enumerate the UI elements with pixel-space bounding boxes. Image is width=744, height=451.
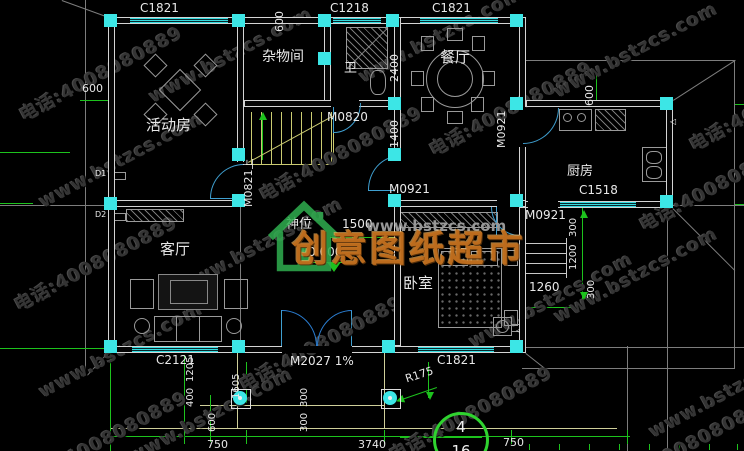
window bbox=[418, 347, 494, 352]
dim-300-right-a: 300 bbox=[569, 218, 579, 237]
chair bbox=[447, 111, 463, 124]
column bbox=[318, 14, 331, 27]
window bbox=[560, 202, 636, 207]
stair-tread bbox=[301, 112, 302, 164]
column bbox=[232, 340, 245, 353]
armchair bbox=[224, 279, 248, 309]
dim-400: 400 bbox=[186, 388, 196, 407]
dim-750-left: 750 bbox=[207, 439, 228, 450]
column bbox=[104, 14, 117, 27]
exterior-step-line bbox=[522, 243, 567, 244]
dim-600-porch: 600 bbox=[208, 413, 218, 432]
tv bbox=[170, 280, 208, 304]
column bbox=[386, 14, 399, 27]
dimension-line bbox=[627, 430, 628, 444]
burner bbox=[563, 113, 572, 122]
column bbox=[388, 97, 401, 110]
wall bbox=[526, 100, 673, 107]
dim-600-left: 600 bbox=[82, 83, 103, 94]
chair bbox=[471, 97, 484, 112]
dimension-line bbox=[589, 444, 590, 450]
column bbox=[660, 195, 673, 208]
column bbox=[510, 194, 523, 207]
dim-600-top: 600 bbox=[274, 11, 285, 32]
chair bbox=[411, 71, 424, 86]
floorplan-canvas: www.bstzcs.com 创意图纸超市 4 16 电话:4008080889… bbox=[0, 0, 744, 451]
burner bbox=[577, 113, 586, 122]
dimension-arrow bbox=[426, 392, 434, 400]
column bbox=[232, 14, 245, 27]
room-bedroom: 卧室 bbox=[403, 276, 433, 291]
column bbox=[510, 340, 523, 353]
column bbox=[104, 197, 117, 210]
counter-appliance bbox=[595, 109, 626, 131]
armchair bbox=[130, 279, 154, 309]
construction-line bbox=[62, 0, 106, 17]
win-c1518: C1518 bbox=[579, 184, 618, 196]
watermark-text: 电话:4008080889 bbox=[635, 129, 744, 237]
wall bbox=[108, 17, 115, 353]
column bbox=[510, 97, 523, 110]
c1821-top-left: C1821 bbox=[140, 2, 179, 14]
chair bbox=[472, 36, 485, 51]
dim-300-right-b: 300 bbox=[587, 280, 597, 299]
side-table bbox=[226, 318, 242, 334]
window bbox=[333, 18, 381, 23]
watermark-text: 电话:4008080889 bbox=[685, 49, 744, 157]
room-storage: 杂物间 bbox=[262, 50, 304, 64]
toilet bbox=[370, 70, 386, 95]
door-m0820: M0820 bbox=[327, 111, 368, 123]
room-living: 客厅 bbox=[160, 242, 190, 257]
door-opening bbox=[528, 201, 558, 208]
window bbox=[132, 347, 218, 352]
c1821-bottom: C1821 bbox=[437, 354, 476, 366]
stair-tread bbox=[251, 112, 252, 164]
porch-column-dot bbox=[388, 396, 392, 400]
mark-d2: D2 bbox=[95, 211, 106, 219]
door-m0821: M0821上 bbox=[243, 159, 254, 208]
side-table bbox=[134, 318, 150, 334]
watermark-text: 电话:4008080889 bbox=[10, 209, 182, 317]
exterior-step-line bbox=[566, 238, 567, 278]
sheet-number: 4 bbox=[436, 418, 486, 436]
sofa-divider bbox=[176, 317, 177, 341]
sheet-number-bubble: 4 16 bbox=[433, 412, 489, 451]
room-bath: 卫 bbox=[344, 62, 357, 75]
construction-line bbox=[673, 60, 736, 101]
stair-tread bbox=[271, 112, 272, 164]
dimension-line bbox=[737, 444, 738, 450]
dim-1400: 1400 bbox=[389, 120, 400, 148]
dim-750-right: 750 bbox=[503, 437, 524, 448]
sheet-total: 16 bbox=[436, 442, 486, 451]
dim-600-kitchen: 600 bbox=[584, 85, 595, 106]
dimension-line bbox=[0, 152, 70, 153]
basin bbox=[646, 166, 662, 179]
column bbox=[660, 97, 673, 110]
dimension-line bbox=[735, 204, 744, 205]
room-activity: 活动房 bbox=[146, 118, 191, 133]
sofa bbox=[154, 316, 222, 342]
dim-1605: 1605 bbox=[232, 374, 242, 399]
chair bbox=[447, 28, 463, 41]
mark-d1: D1 bbox=[95, 170, 106, 178]
dim-300-porch-b: 300 bbox=[300, 413, 310, 432]
chair bbox=[421, 36, 434, 51]
watermark-text: www.bstzcs.com bbox=[551, 0, 722, 103]
door-swing-arc bbox=[210, 164, 244, 198]
column bbox=[510, 14, 523, 27]
room-kitchen: 厨房 bbox=[567, 165, 593, 178]
drain-marker: ◃ bbox=[516, 327, 520, 335]
column bbox=[388, 148, 401, 161]
dining-table-inner bbox=[437, 61, 473, 97]
dimension-line bbox=[0, 348, 106, 349]
column bbox=[318, 52, 331, 65]
dimension-line bbox=[529, 444, 530, 450]
stair-tread bbox=[281, 112, 282, 164]
c1821-top-right: C1821 bbox=[432, 2, 471, 14]
door-m0921-bedroom: M0921 bbox=[525, 209, 566, 221]
wall bbox=[244, 100, 401, 107]
dim-2400: 2400 bbox=[389, 54, 400, 82]
door-m0921-hall: M0921 bbox=[389, 183, 430, 195]
sofa-divider bbox=[199, 317, 200, 341]
room-dining: 餐厅 bbox=[440, 50, 470, 65]
dimension-arrow bbox=[259, 112, 267, 120]
basin bbox=[646, 151, 662, 164]
column bbox=[104, 340, 117, 353]
construction-line bbox=[526, 347, 744, 348]
construction-line bbox=[522, 368, 735, 369]
door-swing-arc bbox=[282, 310, 317, 346]
sideboard bbox=[126, 209, 184, 222]
dimension-line bbox=[246, 430, 247, 444]
wall bbox=[108, 200, 244, 207]
dim-3740: 3740 bbox=[358, 439, 386, 450]
window bbox=[420, 18, 498, 23]
door-swing-marker: ◁ bbox=[670, 118, 676, 126]
door-m0921-vert: M0921 bbox=[496, 111, 507, 149]
watermark-logo-text: 创意图纸超市 bbox=[292, 220, 526, 272]
chair bbox=[482, 71, 495, 86]
dim-r175: R175 bbox=[404, 365, 435, 384]
dim-1200-right: 1200 bbox=[569, 245, 579, 270]
chair bbox=[421, 97, 434, 112]
dimension-arrow bbox=[580, 210, 588, 218]
exterior-step-line bbox=[522, 263, 567, 264]
dimension-line bbox=[0, 203, 33, 204]
door-m2027: M2027 1% bbox=[290, 355, 354, 367]
c1218-top: C1218 bbox=[330, 2, 369, 14]
exterior-step-line bbox=[522, 273, 567, 274]
exterior-step-line bbox=[522, 253, 567, 254]
door-swing-arc bbox=[523, 108, 559, 144]
dimension-line bbox=[619, 444, 620, 450]
washer-drum bbox=[496, 320, 509, 333]
dim-1205: 1205 bbox=[186, 357, 196, 382]
wall bbox=[519, 17, 526, 353]
door-swing-arc bbox=[317, 310, 352, 346]
door-opening bbox=[282, 346, 352, 353]
dimension-line bbox=[559, 444, 560, 450]
dim-300-porch-a: 300 bbox=[300, 388, 310, 407]
window bbox=[130, 18, 228, 23]
column bbox=[382, 340, 395, 353]
dim-1260: 1260 bbox=[529, 281, 560, 293]
